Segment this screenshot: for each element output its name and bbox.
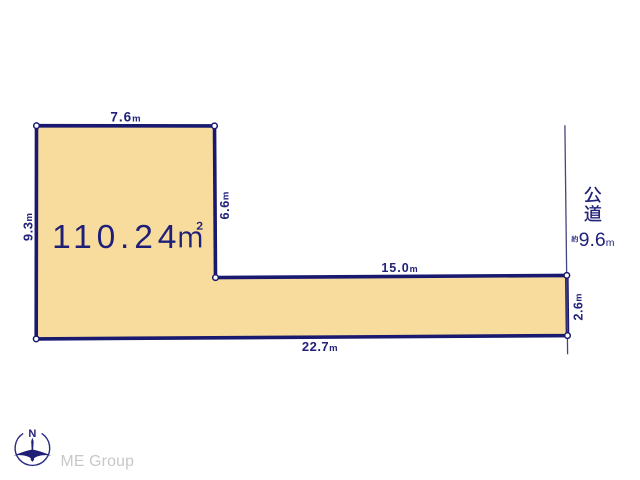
svg-text:22.7m: 22.7m — [302, 339, 338, 354]
svg-text:ME Group: ME Group — [61, 453, 135, 470]
svg-text:9.6m: 9.6m — [579, 229, 615, 251]
svg-text:15.0m: 15.0m — [381, 261, 418, 275]
svg-text:9.3m: 9.3m — [21, 213, 36, 242]
svg-text:7.6m: 7.6m — [110, 109, 141, 124]
svg-text:2.6m: 2.6m — [572, 293, 586, 320]
svg-text:110.24: 110.24 — [52, 219, 181, 256]
svg-text:6.6m: 6.6m — [217, 191, 232, 220]
